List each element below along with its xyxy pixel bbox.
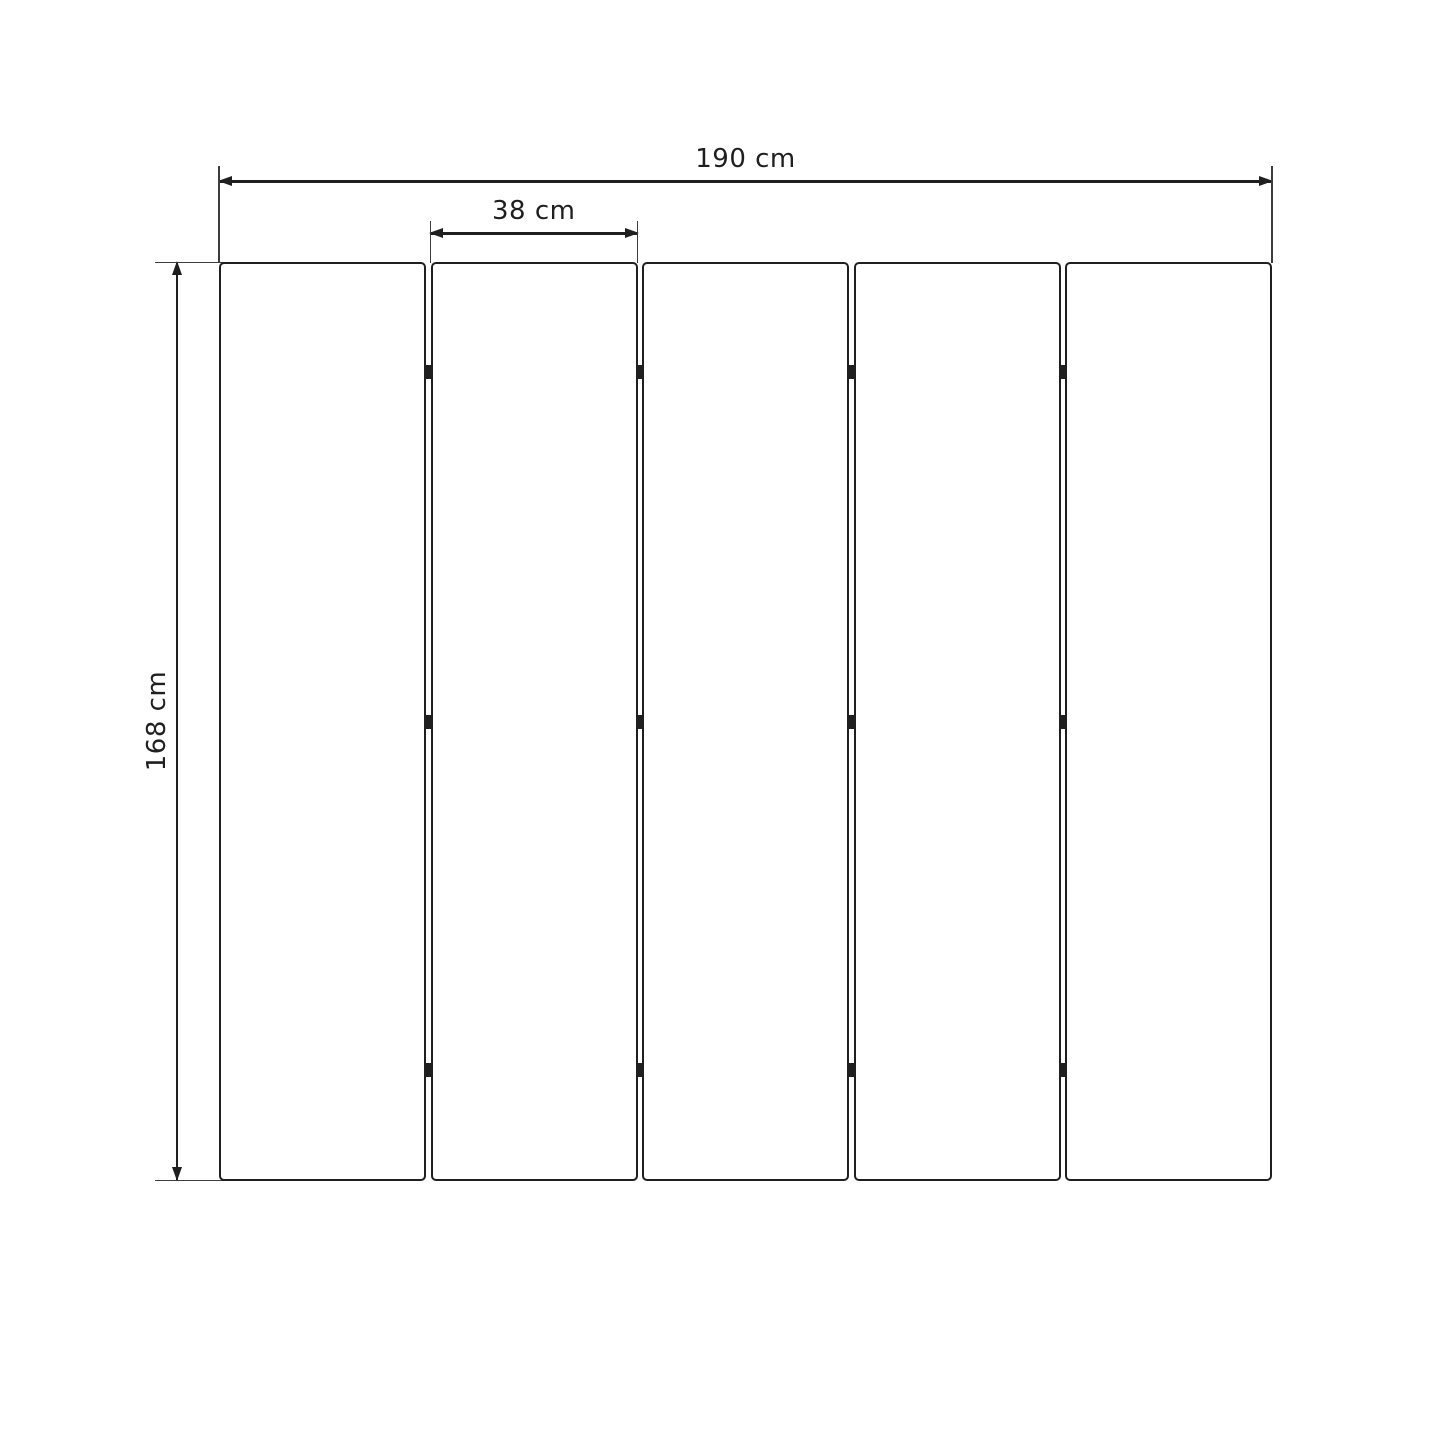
- hinge-mark: [636, 365, 643, 379]
- arrowhead-up-icon: [172, 261, 182, 275]
- hinge-mark: [425, 715, 432, 729]
- extension-line: [1271, 166, 1273, 263]
- dimension-total-width-label: 190 cm: [219, 146, 1272, 172]
- dimension-total-width: 190 cm: [219, 146, 1272, 186]
- panel-1: [219, 262, 426, 1181]
- panel-group: [219, 262, 1272, 1181]
- hinge-mark: [1059, 1063, 1066, 1077]
- extension-line: [218, 166, 220, 263]
- hinge-mark: [848, 715, 855, 729]
- dimension-height: 168 cm: [176, 262, 179, 1180]
- dimension-height-line: [176, 262, 179, 1180]
- hinge-mark: [636, 1063, 643, 1077]
- dimension-total-width-line: [219, 180, 1272, 183]
- extension-line: [430, 221, 432, 263]
- hinge-mark: [636, 715, 643, 729]
- extension-line: [637, 221, 639, 263]
- panel-4: [854, 262, 1061, 1181]
- hinge-mark: [1059, 715, 1066, 729]
- hinge-mark: [1059, 365, 1066, 379]
- panel-3: [642, 262, 849, 1181]
- panel-5: [1065, 262, 1272, 1181]
- hinge-mark: [848, 1063, 855, 1077]
- arrowhead-left-icon: [218, 176, 232, 186]
- dimension-panel-width: 38 cm: [430, 198, 638, 238]
- dimension-height-label: 168 cm: [144, 671, 170, 772]
- arrowhead-left-icon: [429, 228, 443, 238]
- hinge-mark: [848, 365, 855, 379]
- diagram-canvas: 190 cm 38 cm 168 cm: [0, 0, 1445, 1445]
- hinge-mark: [425, 1063, 432, 1077]
- extension-line: [155, 262, 225, 264]
- dimension-panel-width-label: 38 cm: [430, 198, 638, 224]
- dimension-panel-width-line: [430, 232, 638, 235]
- hinge-mark: [425, 365, 432, 379]
- panel-2: [431, 262, 638, 1181]
